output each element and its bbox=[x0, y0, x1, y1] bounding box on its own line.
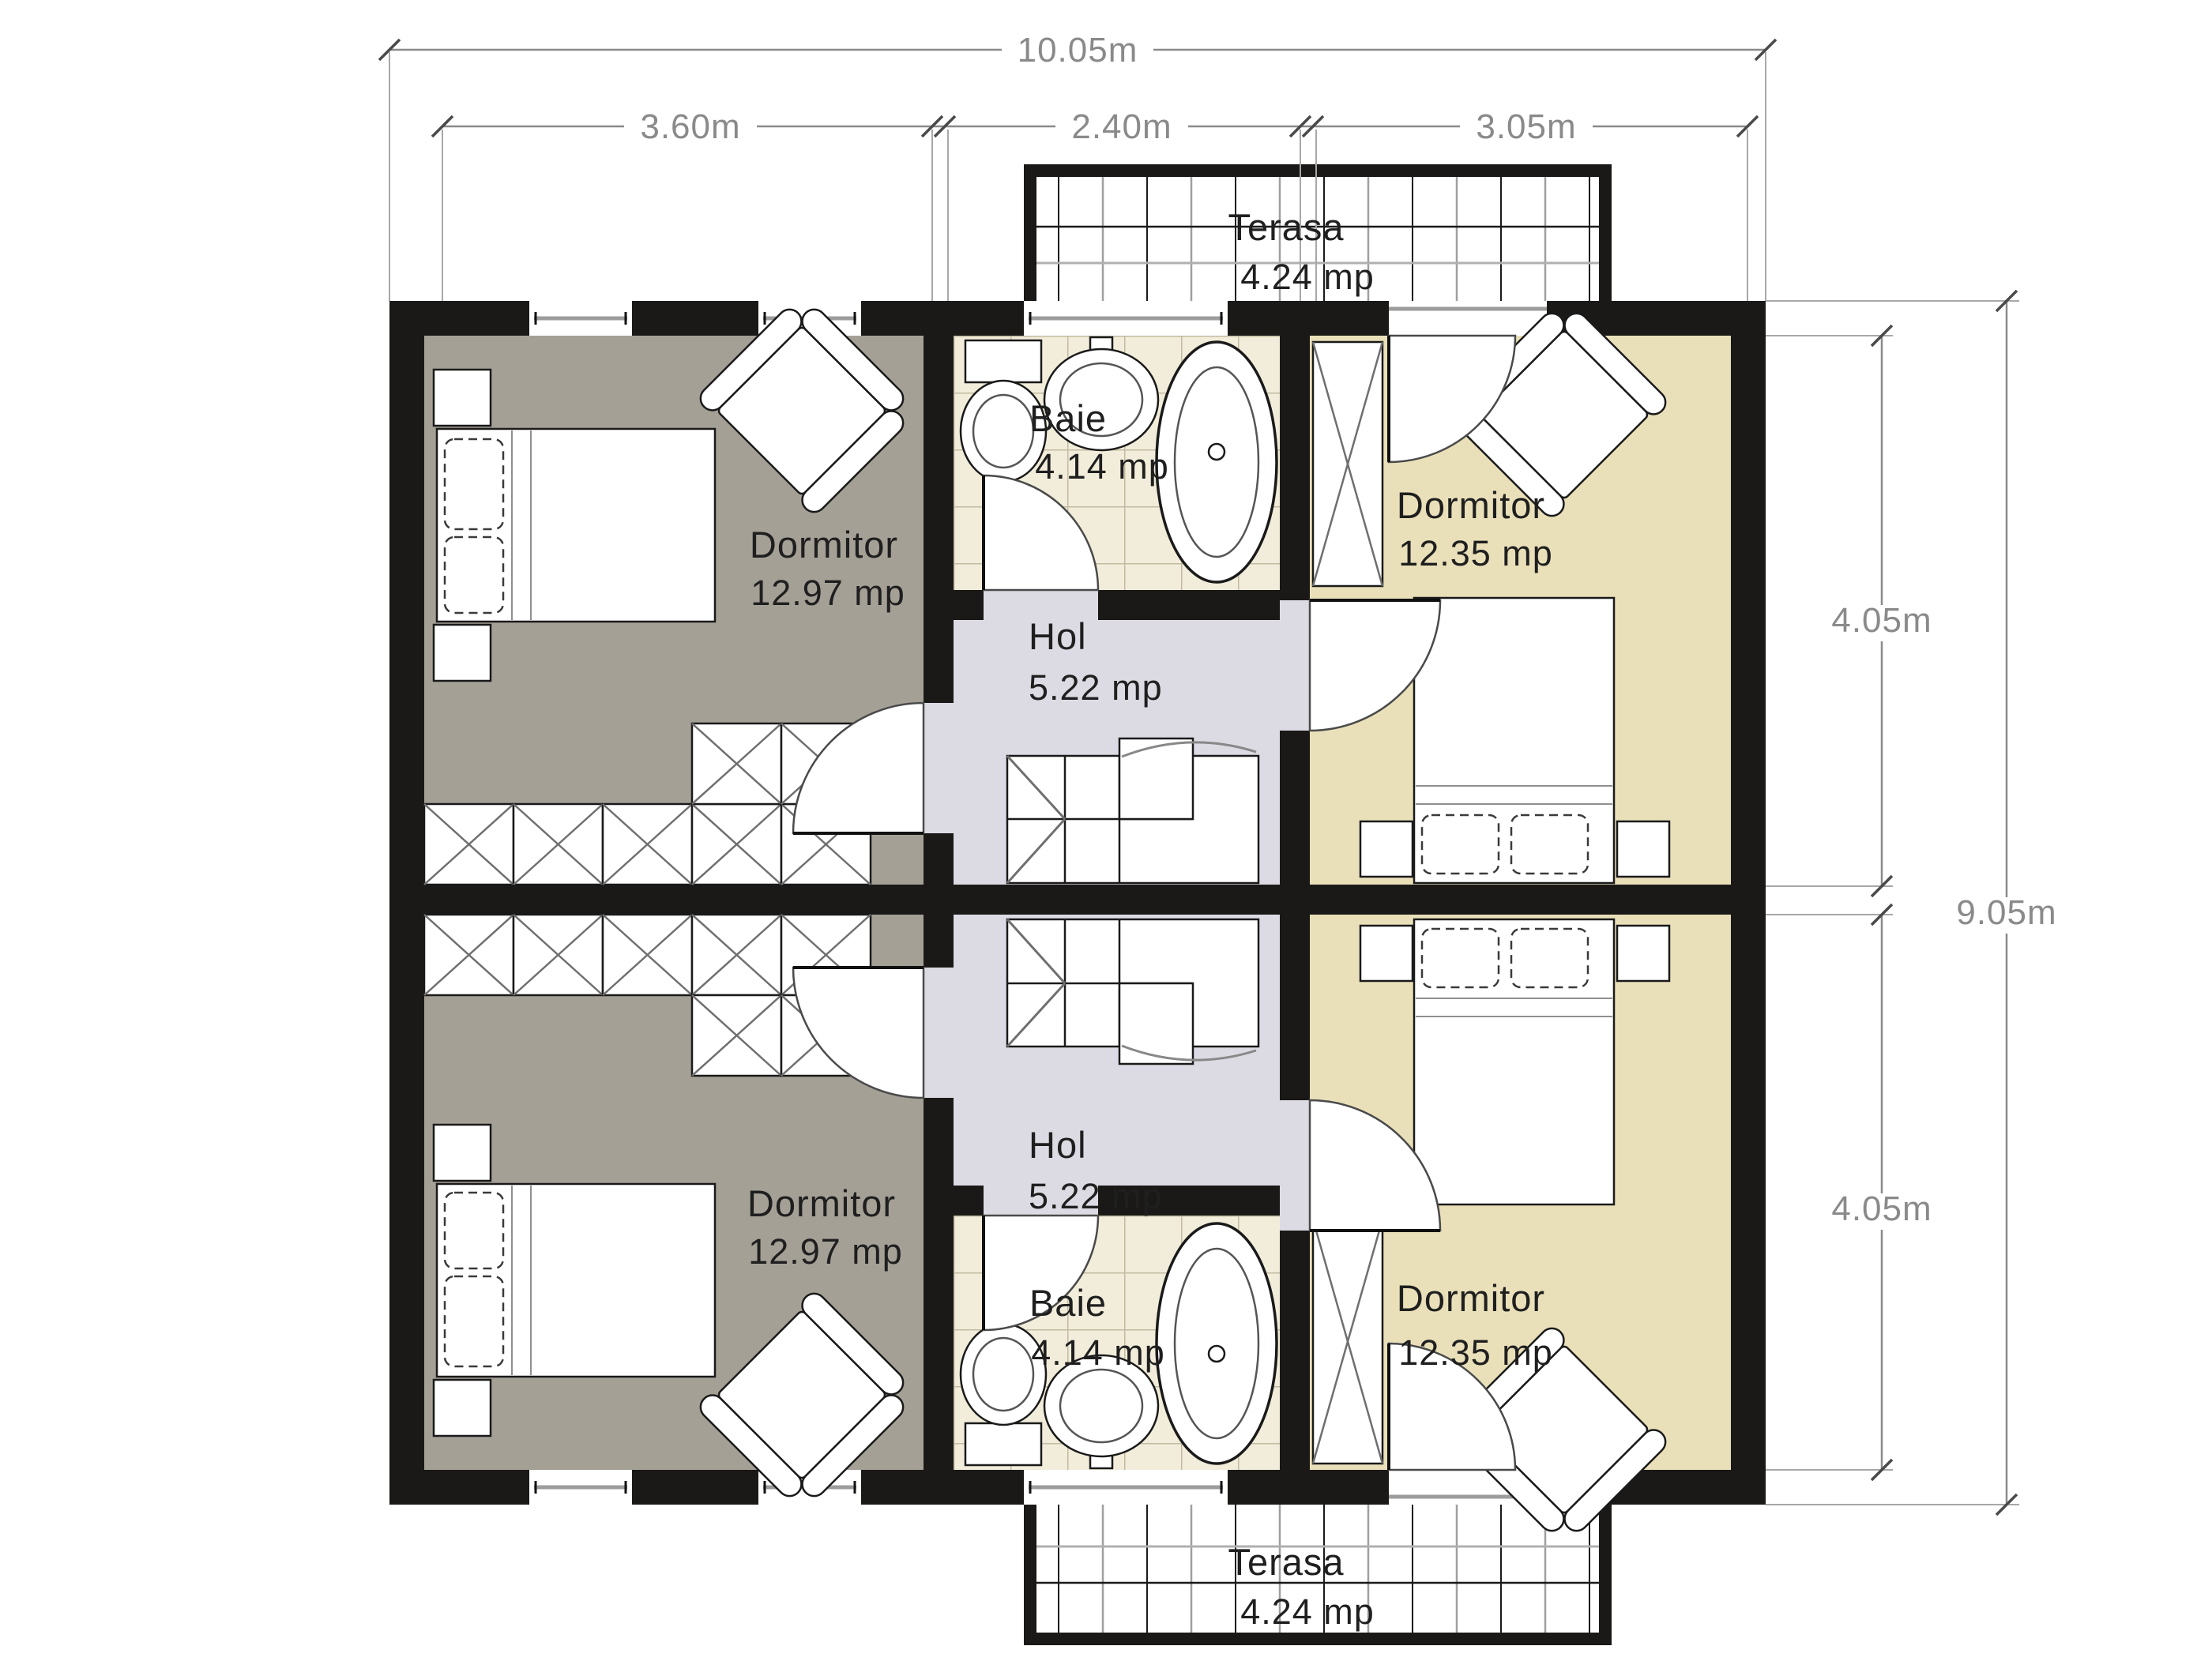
floor-plan-page: 10.05m 3.60m 2.40m 3.05m 4.05m 4.05m 9.0… bbox=[0, 0, 2212, 1661]
wall-partition2-bottom bbox=[1280, 915, 1310, 1100]
toilet-tank-icon bbox=[965, 1423, 1041, 1465]
hall-floor-gap bbox=[1280, 1100, 1310, 1231]
hall-floor-gap bbox=[924, 968, 954, 1098]
floor-plan-drawing: 10.05m 3.60m 2.40m 3.05m 4.05m 4.05m 9.0… bbox=[0, 0, 2212, 1661]
hall-unit-top bbox=[1007, 738, 1258, 883]
bath-top-name: Baie bbox=[1029, 397, 1107, 439]
bedroom-bottom-right-area: 12.35 mp bbox=[1398, 1332, 1553, 1373]
wall-partition1-top bbox=[924, 833, 954, 885]
pillow bbox=[445, 1276, 503, 1366]
wardrobe-bottom-right bbox=[1313, 1219, 1382, 1464]
bedroom-bottom-right-name: Dormitor bbox=[1397, 1277, 1545, 1319]
terrace-top-area: 4.24 mp bbox=[1240, 257, 1375, 297]
pillow bbox=[445, 439, 503, 529]
bedroom-top-right-area: 12.35 mp bbox=[1398, 533, 1553, 573]
nightstand bbox=[434, 370, 491, 426]
dim-right-span-label: 3.05m bbox=[1476, 107, 1576, 146]
nightstand bbox=[434, 1380, 491, 1436]
dim-lower-span-label: 4.05m bbox=[1831, 1189, 1932, 1228]
wall-bath-top-divider bbox=[1098, 590, 1280, 620]
dim-upper-span-label: 4.05m bbox=[1831, 601, 1932, 640]
nightstand bbox=[434, 1125, 491, 1181]
bedroom-top-left-area: 12.97 mp bbox=[750, 573, 905, 613]
hall-bottom-name: Hol bbox=[1029, 1124, 1087, 1166]
window bbox=[1024, 1470, 1228, 1505]
window bbox=[1024, 301, 1228, 336]
dim-left-span-label: 3.60m bbox=[640, 107, 740, 146]
bath-bottom-name: Baie bbox=[1029, 1282, 1107, 1324]
bath-top-area: 4.14 mp bbox=[1035, 446, 1169, 487]
nightstand bbox=[1617, 821, 1669, 877]
dim-total-height-label: 9.05m bbox=[1956, 893, 2056, 932]
wardrobe-top-right bbox=[1313, 342, 1382, 586]
dim-center-span-label: 2.40m bbox=[1071, 107, 1172, 146]
hall-unit-bottom bbox=[1007, 919, 1258, 1064]
hall-top-name: Hol bbox=[1029, 615, 1087, 657]
toilet-tank-icon bbox=[965, 340, 1041, 382]
nightstand bbox=[1360, 926, 1413, 981]
bathtub-icon bbox=[1157, 1223, 1277, 1464]
wall-partition1-top bbox=[924, 336, 954, 703]
wall-partition1-bottom bbox=[924, 915, 954, 968]
bedroom-top-right-name: Dormitor bbox=[1397, 484, 1545, 526]
nightstand bbox=[434, 625, 491, 681]
nightstand bbox=[1360, 821, 1413, 877]
pillow bbox=[445, 537, 503, 613]
pillow bbox=[1422, 929, 1499, 987]
window bbox=[529, 1470, 632, 1505]
wall-bath-top-divider bbox=[924, 590, 984, 620]
dim-total-width-label: 10.05m bbox=[1018, 31, 1138, 70]
hall-floor-gap bbox=[924, 703, 954, 833]
window bbox=[529, 301, 632, 336]
pillow bbox=[1511, 929, 1588, 987]
wall-partition2-bottom bbox=[1280, 1231, 1310, 1470]
wall-middle bbox=[389, 885, 1766, 915]
hall-floor-gap bbox=[1280, 600, 1310, 731]
pillow bbox=[1422, 815, 1499, 874]
hall-top-area: 5.22 mp bbox=[1029, 667, 1163, 708]
terrace-bottom-area: 4.24 mp bbox=[1240, 1591, 1375, 1632]
pillow bbox=[445, 1193, 503, 1268]
wall-partition2-top bbox=[1280, 731, 1310, 885]
wall-partition2-top bbox=[1280, 336, 1310, 600]
terrace-door-opening bbox=[1389, 301, 1547, 336]
pillow bbox=[1511, 815, 1588, 874]
hall-bottom-area: 5.22 mp bbox=[1029, 1176, 1163, 1216]
nightstand bbox=[1617, 926, 1669, 981]
bedroom-bottom-left-area: 12.97 mp bbox=[748, 1231, 903, 1272]
terrace-top-name: Terasa bbox=[1228, 206, 1344, 248]
bathtub-icon bbox=[1157, 342, 1277, 582]
terrace-bottom-name: Terasa bbox=[1228, 1541, 1344, 1583]
wall-partition1-bottom bbox=[924, 1098, 954, 1470]
bath-bottom-area: 4.14 mp bbox=[1031, 1332, 1165, 1373]
bedroom-bottom-left-name: Dormitor bbox=[747, 1182, 896, 1224]
bedroom-top-left-name: Dormitor bbox=[750, 524, 898, 566]
wall-bath-bottom-divider bbox=[924, 1186, 984, 1216]
